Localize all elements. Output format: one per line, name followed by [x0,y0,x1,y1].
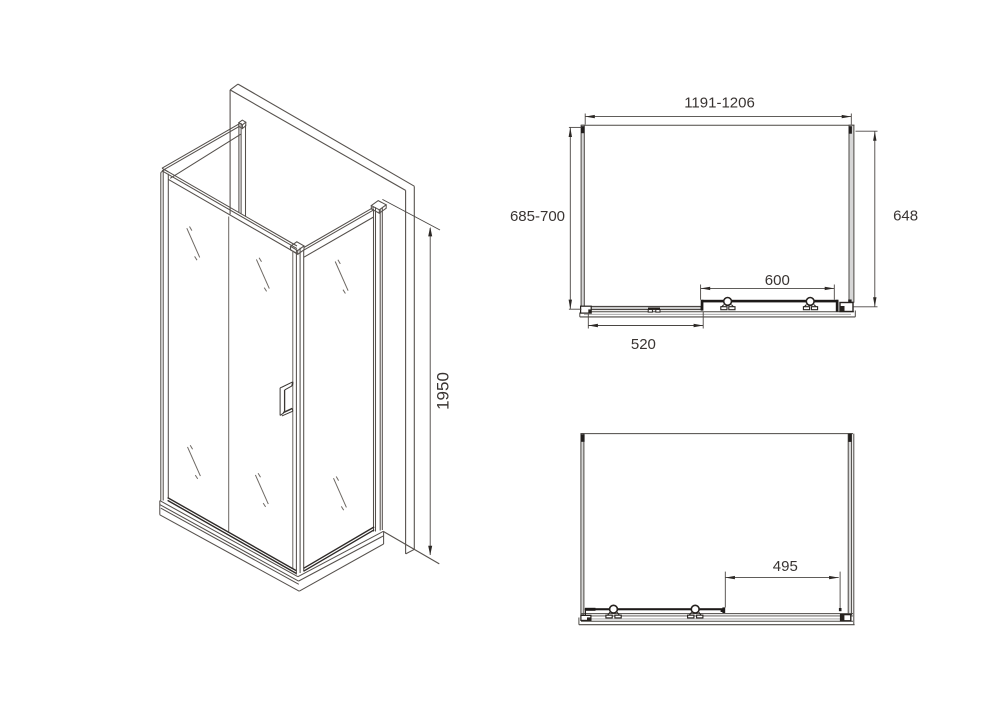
svg-text:520: 520 [631,336,656,353]
svg-text:495: 495 [773,558,798,575]
svg-text:648: 648 [893,208,918,225]
svg-text:600: 600 [765,272,790,289]
svg-text:1950: 1950 [434,372,453,410]
svg-text:685-700: 685-700 [510,208,565,225]
svg-text:1191-1206: 1191-1206 [684,94,755,111]
